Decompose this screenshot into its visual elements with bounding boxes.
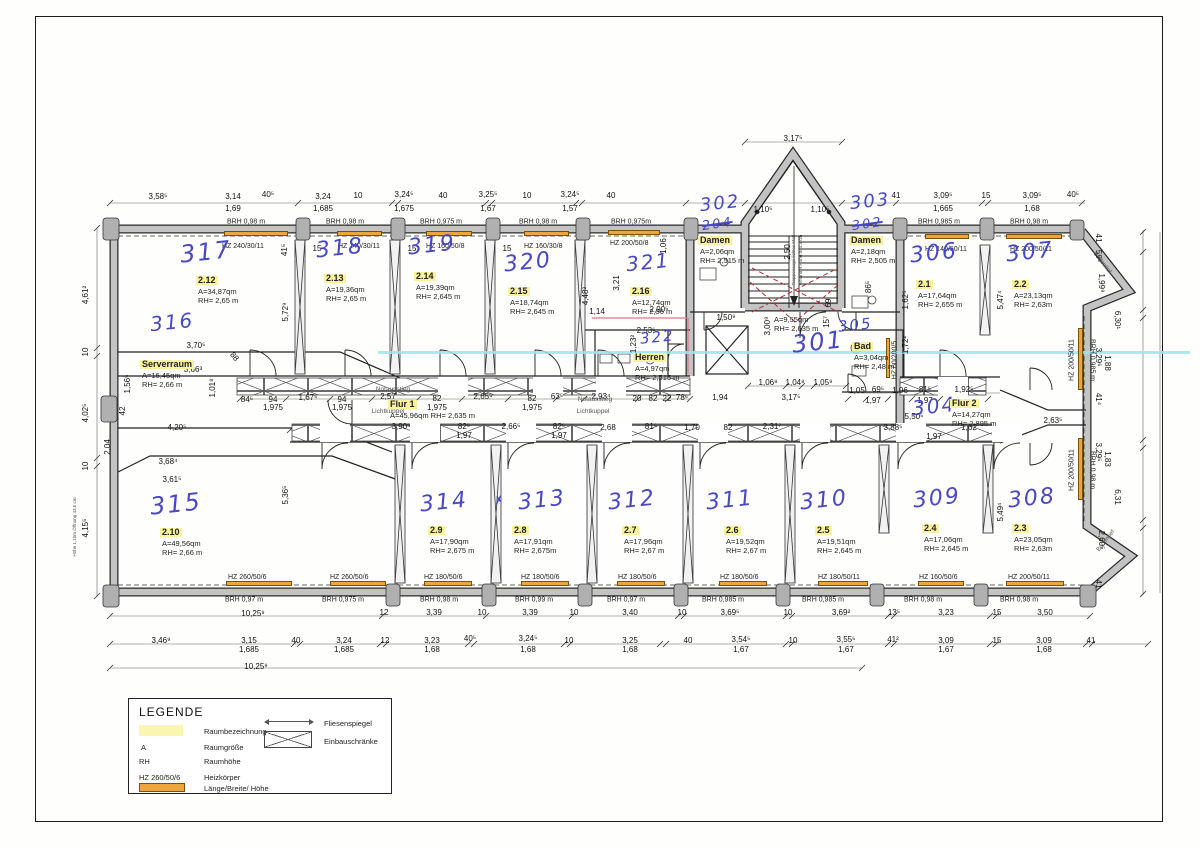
dim-label: 82⁵ <box>458 423 470 431</box>
legend-title: LEGENDE <box>139 705 203 719</box>
brh-label: BRH 0,99 m <box>515 597 553 604</box>
room-number-307: 307 <box>1005 240 1055 267</box>
dim-label: 1,68 <box>424 646 440 654</box>
dim-label: 10 <box>354 192 363 200</box>
room-area: A=3,04qm <box>854 354 888 362</box>
dim-label: 81⁵ <box>919 386 931 394</box>
room-number-302: 302 <box>699 193 741 215</box>
room-area: A=17,96qm <box>624 538 663 546</box>
dim-label: 10 <box>82 462 90 471</box>
heater-bar <box>226 581 292 586</box>
heater-bar <box>521 581 569 586</box>
dim-label: 41 <box>1094 234 1102 243</box>
room-name: Damen <box>849 236 883 245</box>
dim-label: 1,56⁵ <box>124 375 132 394</box>
dim-label: 3,21 <box>613 275 621 291</box>
dim-label: 10 <box>784 609 793 617</box>
heater-bar <box>330 581 386 586</box>
dim-label: 10 <box>565 637 574 645</box>
room-height: RH= 2,895 m <box>952 420 996 428</box>
room-code: 2.2 <box>1012 280 1029 289</box>
room-code: 2.10 <box>160 528 182 537</box>
legend-a-label: Raumgröße <box>204 743 244 752</box>
room-number-old: 204 <box>701 216 733 233</box>
room-area: A=19,36qm <box>326 286 365 294</box>
dim-label: 3,17⁵ <box>784 135 803 143</box>
room-area: A=2,18qm <box>851 248 885 256</box>
room-name: Bad <box>852 342 873 351</box>
closet-symbol <box>264 731 312 748</box>
dim-label: 4,48³ <box>582 287 590 305</box>
dim-label: 4,15⁵ <box>82 519 90 538</box>
room-code: 2.4 <box>922 524 939 533</box>
room-number-312: 312 <box>607 488 657 515</box>
dim-label: 1,67 <box>733 646 749 654</box>
dim-label: 1,97 <box>456 432 472 440</box>
room-height: RH= 2,56 m <box>632 308 672 316</box>
dim-label: 10 <box>678 609 687 617</box>
brh-label: BRH 0,97 m <box>607 597 645 604</box>
dim-label: 69 <box>825 299 833 308</box>
dim-label: 3,24 <box>315 193 331 201</box>
dim-label: 3,40 <box>622 609 638 617</box>
dim-label: 1,67 <box>938 646 954 654</box>
room-height: RH= 2,63m <box>1014 301 1052 309</box>
room-height: RH= 2,63m <box>1014 545 1052 553</box>
dim-label: 1,88 <box>1103 355 1111 371</box>
heater-label: HZ 60/200/5 <box>892 341 899 380</box>
room-code: 2.7 <box>622 526 639 535</box>
dim-label: 1,975 <box>522 404 542 412</box>
dim-label: 3,17⁵ <box>782 394 801 402</box>
dim-label: 1,05⁹ <box>814 379 833 387</box>
dim-label: 3,50 <box>1037 609 1053 617</box>
dim-label: 1,70 <box>684 424 700 432</box>
dim-label: 82⁵ <box>553 423 565 431</box>
dim-label: 4,61² <box>82 286 90 304</box>
brh-label: BRH 0,985 m <box>918 219 960 226</box>
legend-closet-label: Einbauschränke <box>324 737 378 746</box>
brh-label: BRH 0,975 m <box>322 597 364 604</box>
dim-label: 10 <box>570 609 579 617</box>
room-height: RH= 2,505 m <box>851 257 895 265</box>
dim-label: 88 <box>228 351 240 363</box>
dim-label: 81⁵ <box>645 423 657 431</box>
dim-label: 3,46⁹ <box>152 637 171 645</box>
dim-label: 1,72² <box>902 336 910 354</box>
dim-label: 1,685 <box>313 205 333 213</box>
brh-label: BRH 0,985 m <box>802 597 844 604</box>
dim-label: 3,00⁹ <box>764 317 772 336</box>
heater-label: HZ 160/50/6 <box>919 574 958 581</box>
dim-label: 4,02⁵ <box>82 404 90 423</box>
dim-label: 5,36⁵ <box>282 486 290 505</box>
dim-label: 1,665 <box>933 205 953 213</box>
room-area: A=23,05qm <box>1014 536 1053 544</box>
dim-label: 3,90⁵ <box>392 423 411 431</box>
dim-label: 3,09⁵ <box>934 192 953 200</box>
dim-label: 1,685 <box>239 646 259 654</box>
room-area: A=34,87qm <box>198 288 237 296</box>
dim-label: 1,92⁵ <box>955 386 974 394</box>
legend-hz-key: HZ 260/50/6 <box>139 773 180 782</box>
dim-label: 3,61⁵ <box>163 476 182 484</box>
room-code: 2.1 <box>916 280 933 289</box>
dim-label: 4,20⁵ <box>168 424 187 432</box>
dim-label: 1,975 <box>263 404 283 412</box>
brh-label: BRH 0,98 m <box>904 597 942 604</box>
room-code: 2.15 <box>508 287 530 296</box>
heater-bar <box>925 234 969 239</box>
room-height: RH= 2,635 m <box>774 325 818 333</box>
room-area: A=17,64qm <box>918 292 957 300</box>
dim-label: 1,675 <box>394 205 414 213</box>
legend-hz-label2: Länge/Breite/ Höhe <box>204 784 269 793</box>
dim-label: 3,88⁵ <box>884 424 903 432</box>
dim-label: 3,39 <box>522 609 538 617</box>
plan-note: Höhe 1,10m Öffnung 43,5 cm <box>73 498 78 557</box>
dim-label: 15 <box>993 609 1002 617</box>
dim-label: 3,15 <box>241 637 257 645</box>
dim-label: 12 <box>381 637 390 645</box>
dim-label: 1,14 <box>589 308 605 316</box>
heater-label: HZ 200/50/8 <box>610 240 649 247</box>
brh-label: BRH 0,985 m <box>1089 339 1096 381</box>
heater-bar <box>617 581 665 586</box>
dim-label: 41 <box>1087 637 1096 645</box>
room-height: RH= 2,515 m <box>700 257 744 265</box>
dim-label: 41⁴ <box>1094 393 1102 405</box>
dim-label: 6,30¹ <box>1113 311 1121 329</box>
dim-label: 3,58⁵ <box>149 193 168 201</box>
brh-label: BRH 0,98 m <box>326 219 364 226</box>
dim-label: 1,99⁹ <box>1097 274 1105 293</box>
heater-label: HZ 200/50/11 <box>1008 574 1050 581</box>
legend-tiles-label: Fliesenspiegel <box>324 719 372 728</box>
dim-label: 82 <box>528 395 537 403</box>
hand-mark: ✗ <box>493 493 507 507</box>
dim-label: 3,69⁵ <box>721 609 740 617</box>
dim-label: 20 <box>633 395 642 403</box>
dim-label: 1,685 <box>334 646 354 654</box>
room-code: 2.8 <box>512 526 529 535</box>
dim-label: 1,975 <box>332 404 352 412</box>
dim-label: 1,94 <box>712 394 728 402</box>
room-code: 2.14 <box>414 272 436 281</box>
room-number-322: 322 <box>639 328 675 347</box>
room-area: A=19,39qm <box>416 284 455 292</box>
room-height: RH= 2,645 m <box>817 547 861 555</box>
heater-bar <box>224 231 288 236</box>
dim-label: 1,01⁸ <box>209 379 217 398</box>
dim-label: 69⁵ <box>872 386 884 394</box>
room-height: RH= 2,66 m <box>162 549 202 557</box>
dim-label: 3,24⁵ <box>519 635 538 643</box>
heater-bar <box>1006 581 1064 586</box>
dim-label: 1,04⁸ <box>786 379 805 387</box>
heater-bar <box>918 581 964 586</box>
dim-label: 15 <box>993 637 1002 645</box>
dim-label: 3,68⁴ <box>158 458 177 466</box>
room-area: A=4,97qm <box>635 365 669 373</box>
plan-note: Treppenauge lichtes Maß <box>792 235 797 286</box>
heater-bar <box>1006 234 1062 239</box>
dim-label: 3,70⁵ <box>187 342 206 350</box>
room-number-308: 308 <box>1007 486 1057 513</box>
room-area: A=18,74qm <box>510 299 549 307</box>
room-height: RH= 2,66 m <box>142 381 182 389</box>
legend-rh-label: Raumhöhe <box>204 757 241 766</box>
room-code: 2.3 <box>1012 524 1029 533</box>
dim-label: 40⁵ <box>464 635 476 643</box>
room-height: RH= 2,645 m <box>416 293 460 301</box>
dim-label: 63⁵ <box>551 393 563 401</box>
brh-label: BRH 0,97 m <box>225 597 263 604</box>
dim-label: 42 <box>119 407 127 416</box>
room-area: A=23,13qm <box>1014 292 1053 300</box>
heater-label: HZ 260/50/6 <box>330 574 369 581</box>
dim-label: 3,09 <box>1036 637 1052 645</box>
dim-label: 3,54⁵ <box>732 636 751 644</box>
dim-label: 1,57 <box>562 205 578 213</box>
dim-label: 3,14 <box>225 193 241 201</box>
heater-label: HZ 260/50/6 <box>228 574 267 581</box>
dim-label: 1,67⁵ <box>299 394 318 402</box>
dim-label: 82 <box>433 395 442 403</box>
dim-label: 41⁵ <box>281 244 289 256</box>
heater-label: HZ 200/50/11 <box>1069 339 1076 381</box>
dim-label: 86⁵ <box>865 281 873 293</box>
dim-label: 10,25⁹ <box>241 610 264 618</box>
heater-bar <box>1078 328 1083 390</box>
scan-page: 3,58⁵3,1440⁵3,24103,24⁵403,25⁵103,24⁵401… <box>0 0 1200 848</box>
heater-bar <box>1078 438 1083 500</box>
dim-label: 40 <box>684 637 693 645</box>
room-name: Damen <box>698 236 732 245</box>
dim-label: 2,68 <box>600 424 616 432</box>
room-number-318: 318 <box>315 236 365 263</box>
room-area: A=16,45qm <box>142 372 181 380</box>
dim-label: 78⁶ <box>676 394 688 402</box>
plan-note: Geländer Rund d=4,5 cm <box>799 235 804 285</box>
dim-label: 3,09 <box>938 637 954 645</box>
room-height: RH= 2,67 m <box>624 547 664 555</box>
room-code: 2.5 <box>815 526 832 535</box>
tiles-symbol <box>264 719 314 725</box>
dim-label: 82 <box>724 424 733 432</box>
dim-label: 5,49⁴ <box>997 502 1005 521</box>
room-height: RH= 2,675m <box>514 547 556 555</box>
dim-label: 3,55⁵ <box>837 636 856 644</box>
dim-label: 3,23 <box>424 637 440 645</box>
legend-room-label: Raumbezeichnung <box>204 727 267 736</box>
room-code: 2.13 <box>324 274 346 283</box>
room-height: RH= 2,655 m <box>918 301 962 309</box>
plan-note: Lichtkuppel <box>577 409 610 416</box>
dim-label: 41 <box>892 192 901 200</box>
dim-label: 84⁵ <box>241 396 253 404</box>
room-number-old: 302 <box>851 216 883 233</box>
dim-label: 3,25 <box>622 637 638 645</box>
dim-label: 82 <box>649 395 658 403</box>
room-height: RH= 2,65 m <box>198 297 238 305</box>
room-code: 2.9 <box>428 526 445 535</box>
room-area: A=9,55qm <box>774 316 808 324</box>
room-number-316: 316 <box>149 310 195 335</box>
room-name: Flur 1 <box>388 400 417 409</box>
room-name: Serverraum <box>140 360 194 369</box>
room-number-314: 314 <box>419 490 469 517</box>
dim-label: 1,68 <box>622 646 638 654</box>
legend-a-key: A <box>141 743 146 752</box>
legend-box: LEGENDE Raumbezeichnung A Raumgröße RH R… <box>128 698 392 794</box>
brh-label: BRH 0,98 m <box>1089 451 1096 489</box>
dim-label: 40⁵ <box>262 191 274 199</box>
dim-label: 1,10⁵ <box>754 206 773 214</box>
dim-label: 2,63⁵ <box>1044 417 1063 425</box>
legend-rh-key: RH <box>139 757 150 766</box>
dim-label: 3,24⁵ <box>395 191 414 199</box>
room-area: A=19,51qm <box>817 538 856 546</box>
plan-note: Notausstieg <box>376 387 410 394</box>
room-code: 2.16 <box>630 287 652 296</box>
dim-label: 2,65⁵ <box>474 393 493 401</box>
heater-bar <box>424 581 472 586</box>
room-area: A=12,74qm <box>632 299 671 307</box>
brh-label: BRH 0,975m <box>611 219 651 226</box>
brh-label: BRH 0,98 m <box>519 219 557 226</box>
room-number-319: 319 <box>407 233 457 260</box>
dim-label: 3,25⁵ <box>479 191 498 199</box>
dim-label: 1,10⁵ <box>811 206 830 214</box>
room-height: RH= 2,67 m <box>726 547 766 555</box>
room-height: RH= 2,515 m <box>635 374 679 382</box>
room-number-321: 321 <box>625 250 671 275</box>
dim-label: 2,31⁷ <box>763 423 781 431</box>
dim-label: 41² <box>887 636 899 644</box>
dim-label: 1,05 <box>849 387 865 395</box>
legend-hz-label: Heizkörper <box>204 773 240 782</box>
dim-label: 1,83 <box>1103 451 1111 467</box>
dim-label: 15 <box>982 192 991 200</box>
room-code: 2.12 <box>196 276 218 285</box>
brh-label: BRH 0,98 m <box>1010 219 1048 226</box>
room-height: RH= 2,645 m <box>924 545 968 553</box>
room-code: 2.6 <box>724 526 741 535</box>
room-height: RH= 2,645 m <box>510 308 554 316</box>
dim-label: 1,68 <box>520 646 536 654</box>
room-height: RH= 2,48 m <box>854 363 894 371</box>
room-area: A=49,56qm <box>162 540 201 548</box>
dim-label: 40 <box>607 192 616 200</box>
brh-label: BRH 0,98 m <box>227 219 265 226</box>
dim-label: 1,62⁵ <box>902 291 910 310</box>
room-area: A=14,27qm <box>952 411 991 419</box>
dim-label: 10 <box>82 348 90 357</box>
dim-label: 3,09⁵ <box>1023 192 1042 200</box>
room-number-317: 317 <box>179 237 233 266</box>
dim-label: 1,67 <box>480 205 496 213</box>
dim-label: 3,39 <box>426 609 442 617</box>
room-area: A=17,06qm <box>924 536 963 544</box>
heater-label: HZ 180/50/6 <box>424 574 463 581</box>
dim-label: 2,04 <box>104 439 112 455</box>
dim-label: 1,69 <box>225 205 241 213</box>
room-number-311: 311 <box>705 488 755 515</box>
dim-label: 1,67 <box>838 646 854 654</box>
dim-label: 3,69² <box>832 609 850 617</box>
dim-label: 3,24 <box>336 637 352 645</box>
brh-label: BRH 0,975 m <box>420 219 462 226</box>
dim-label: 1,06 <box>892 387 908 395</box>
heater-bar <box>608 230 660 235</box>
heater-label: HZ 180/50/6 <box>521 574 560 581</box>
room-number-306: 306 <box>909 241 959 268</box>
dim-label: 1,50⁹ <box>717 314 736 322</box>
dim-label: 1,23² <box>630 335 638 353</box>
brh-label: BRH 0,98 m <box>420 597 458 604</box>
dim-label: 3,24⁵ <box>561 191 580 199</box>
heater-label: HZ 200/50/11 <box>1069 449 1076 491</box>
room-area: A=2,06qm <box>700 248 734 256</box>
room-number-309: 309 <box>912 486 962 513</box>
dim-label: 1,68 <box>1024 205 1040 213</box>
dim-label: 10,25⁹ <box>244 663 267 671</box>
heater-label: HZ 180/50/11 <box>818 574 860 581</box>
dim-label: 10 <box>478 609 487 617</box>
dim-label: 1,68 <box>1036 646 1052 654</box>
room-label-swatch <box>139 725 183 736</box>
dim-label: 1,06⁸ <box>759 379 778 387</box>
heater-bar <box>524 231 569 236</box>
dim-label: 22 <box>663 395 672 403</box>
room-number-313: 313 <box>517 488 567 515</box>
heater-label: HZ 180/50/6 <box>618 574 657 581</box>
room-height: RH= 2,675 m <box>430 547 474 555</box>
room-area: A=17,90qm <box>430 538 469 546</box>
dim-label: 13⁵ <box>888 609 900 617</box>
plan-note: Notausstieg <box>578 397 612 404</box>
heater-bar <box>818 581 868 586</box>
dim-label: 40 <box>292 637 301 645</box>
dim-label: 1,97 <box>551 432 567 440</box>
heater-label: HZ 180/50/6 <box>720 574 759 581</box>
dim-label: 2,66⁵ <box>502 423 521 431</box>
dim-label: 3,23 <box>938 609 954 617</box>
room-area: A=19,52qm <box>726 538 765 546</box>
heater-bar <box>719 581 767 586</box>
brh-label: BRH 0,985 m <box>702 597 744 604</box>
room-number-303: 303 <box>849 191 891 213</box>
dim-label: 12 <box>380 609 389 617</box>
dim-label: 5,47⁴ <box>997 290 1005 309</box>
dim-label: 1,97 <box>926 433 942 441</box>
heater-swatch <box>139 783 185 792</box>
room-number-310: 310 <box>799 488 849 515</box>
dim-label: 40 <box>439 192 448 200</box>
dim-label: 41 <box>1094 580 1102 589</box>
dim-label: 10 <box>789 637 798 645</box>
room-area: A=45,96qm RH= 2,635 m <box>390 412 475 420</box>
dim-label: 10 <box>523 192 532 200</box>
room-height: RH= 2,65 m <box>326 295 366 303</box>
dim-label: 40⁵ <box>1067 191 1079 199</box>
dim-label: 1,97 <box>865 397 881 405</box>
room-name: Flur 2 <box>950 399 979 408</box>
room-number-320: 320 <box>503 250 553 277</box>
room-area: A=17,91qm <box>514 538 553 546</box>
brh-label: BRH 0,98 m <box>1000 597 1038 604</box>
